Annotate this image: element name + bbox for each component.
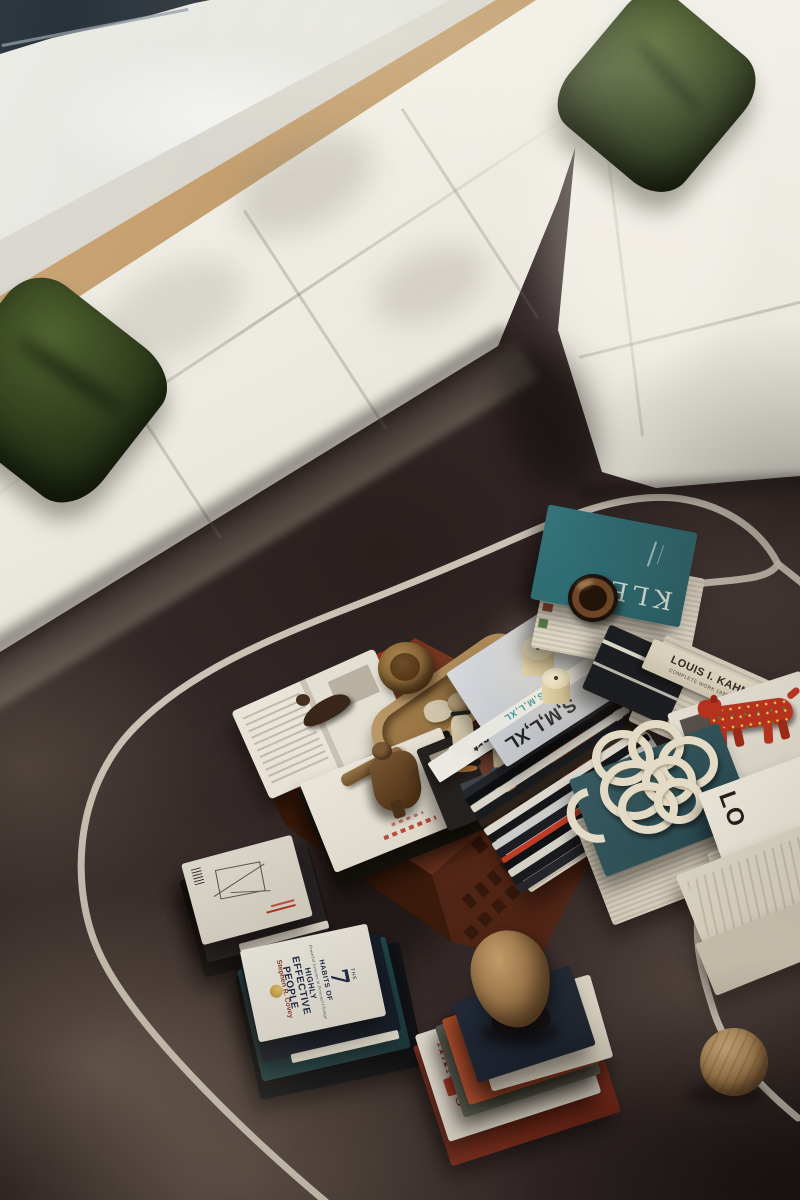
rope-knot xyxy=(570,712,720,832)
arch-book-red-text-2 xyxy=(271,899,295,907)
living-room-photo: wallpaper* S,M,L,XL S,M,L,XL KLEE xyxy=(0,0,800,1200)
toy-animal-leg-3 xyxy=(763,723,773,743)
rug-line-branch xyxy=(778,564,800,588)
rope-ring-7 xyxy=(654,778,704,824)
toy-animal-leg-2 xyxy=(732,727,745,747)
arch-book-diagram xyxy=(215,861,266,899)
toy-animal-ear xyxy=(710,694,718,703)
wood-cup-rim xyxy=(572,578,614,618)
habits-seven: 7 xyxy=(327,967,352,988)
arch-book-red-text-1 xyxy=(266,904,295,914)
wood-ball-grain xyxy=(700,1028,768,1096)
wooden-bird-head xyxy=(296,694,310,706)
page-edge-fleck-1 xyxy=(542,603,553,613)
toy-animal-leg-4 xyxy=(777,719,791,741)
wood-ball xyxy=(700,1028,768,1096)
klee-subtitle-dash-2 xyxy=(657,545,664,564)
wood-bowl xyxy=(378,642,434,694)
lo-title: LO xyxy=(712,788,751,833)
page-edge-fleck-2 xyxy=(538,618,549,629)
klee-subtitle-dash-1 xyxy=(647,541,657,566)
wood-sculpture-head xyxy=(372,742,392,760)
candle-3-wick xyxy=(554,676,558,680)
arch-book-diagram-line-1 xyxy=(214,863,265,897)
candle-3 xyxy=(542,668,570,704)
arch-book-barcode xyxy=(191,867,205,885)
arch-book-diagram-line-2 xyxy=(231,890,271,893)
